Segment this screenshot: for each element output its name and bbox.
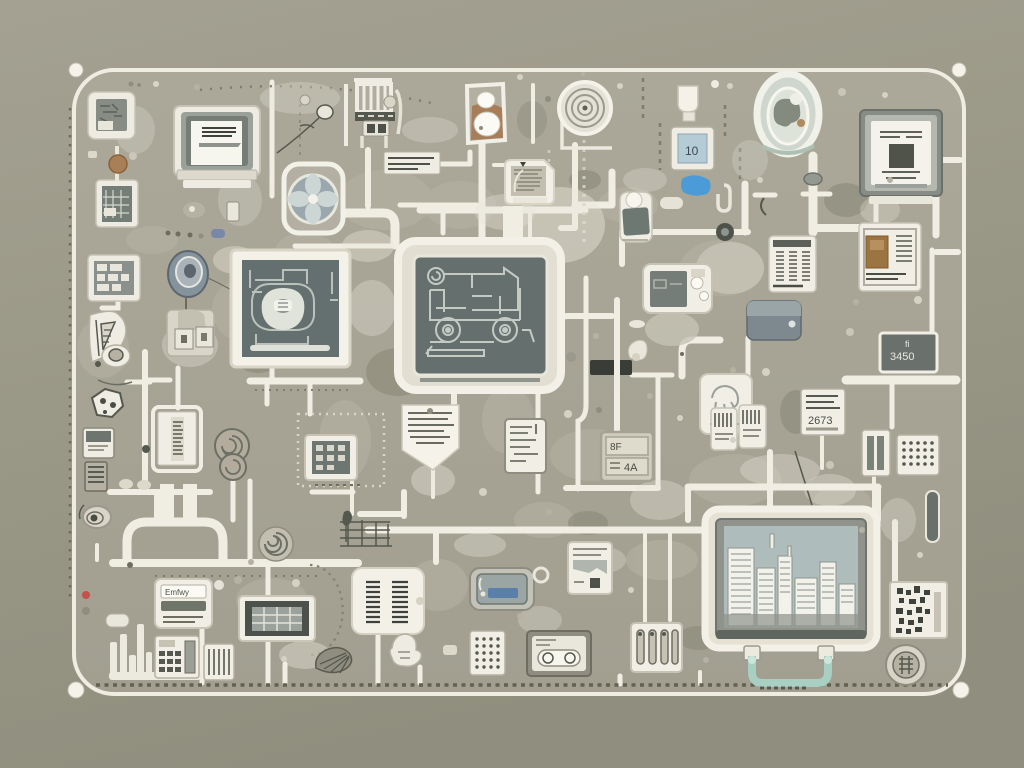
svg-text:8F: 8F	[610, 442, 622, 453]
svg-text:2673: 2673	[808, 415, 832, 427]
svg-text:3450: 3450	[890, 351, 914, 363]
svg-text:Emfwy: Emfwy	[165, 588, 189, 597]
svg-text:fi: fi	[905, 339, 910, 349]
svg-text:4A: 4A	[624, 462, 638, 474]
svg-text:10: 10	[685, 144, 699, 158]
